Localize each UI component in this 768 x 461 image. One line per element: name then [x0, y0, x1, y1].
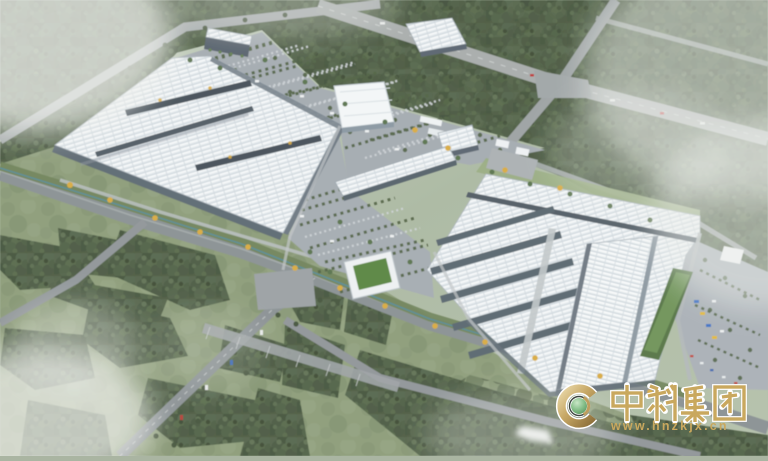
svg-text:www.hnzkjx.cn: www.hnzkjx.cn: [610, 419, 729, 433]
